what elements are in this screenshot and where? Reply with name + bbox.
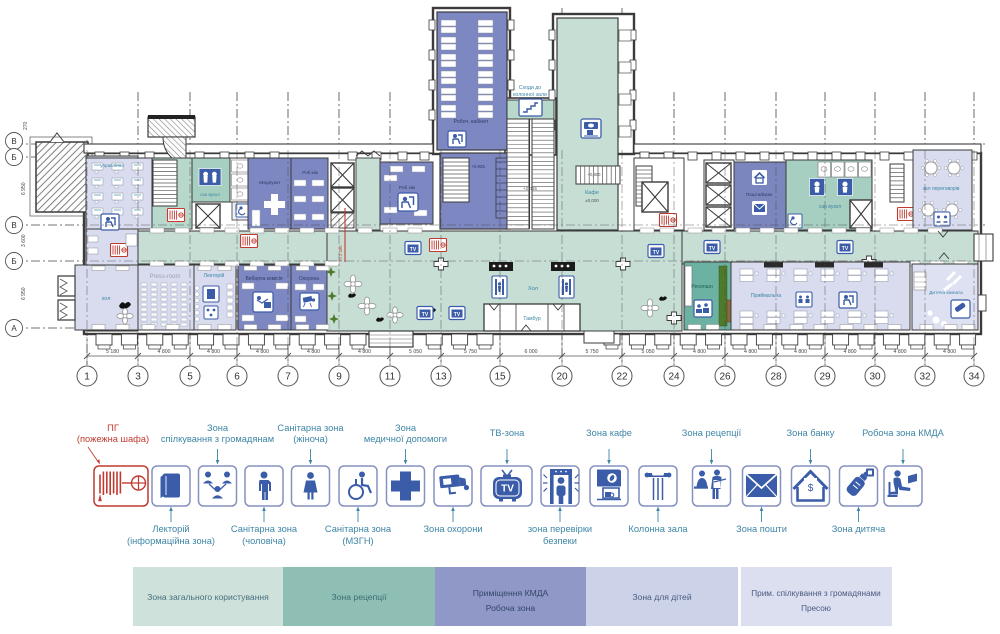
svg-text:3 600: 3 600 bbox=[21, 234, 27, 247]
svg-text:Кафе: Кафе bbox=[585, 190, 599, 196]
svg-text:ПГ: ПГ bbox=[107, 423, 119, 433]
svg-text:32: 32 bbox=[919, 372, 931, 383]
svg-text:4 800: 4 800 bbox=[794, 349, 807, 355]
svg-text:Тамбур: Тамбур bbox=[523, 316, 541, 322]
svg-text:Б: Б bbox=[11, 153, 16, 162]
svg-text:5 050: 5 050 bbox=[409, 349, 422, 355]
svg-text:6 000: 6 000 bbox=[525, 349, 538, 355]
svg-text:Приміщення КМДА: Приміщення КМДА bbox=[473, 588, 549, 598]
svg-text:Робоч. кабінет: Робоч. кабінет bbox=[454, 119, 489, 125]
svg-text:9: 9 bbox=[336, 372, 342, 383]
svg-text:Пошта/Банк: Пошта/Банк bbox=[746, 192, 774, 198]
svg-text:Ресепшн: Ресепшн bbox=[691, 284, 713, 290]
svg-text:Зона пошти: Зона пошти bbox=[736, 524, 787, 534]
svg-text:зал переговорів: зал переговорів bbox=[923, 186, 960, 192]
svg-text:4 800: 4 800 bbox=[693, 349, 706, 355]
svg-text:4 800: 4 800 bbox=[744, 349, 757, 355]
svg-text:5 750: 5 750 bbox=[464, 349, 477, 355]
svg-text:3: 3 bbox=[135, 372, 141, 383]
svg-text:Прим. спілкування з громадянам: Прим. спілкування з громадянами bbox=[751, 589, 880, 598]
svg-text:6 950: 6 950 bbox=[21, 182, 27, 195]
svg-text:4 800: 4 800 bbox=[307, 349, 320, 355]
svg-text:Лекторій: Лекторій bbox=[152, 524, 189, 534]
svg-text:Робоча зона КМДА: Робоча зона КМДА bbox=[862, 428, 945, 438]
svg-text:Б: Б bbox=[11, 257, 16, 266]
svg-text:TV: TV bbox=[410, 247, 417, 253]
svg-text:1: 1 bbox=[84, 372, 90, 383]
svg-text:Санітарна зона: Санітарна зона bbox=[231, 524, 298, 534]
svg-text:Зона рецепції: Зона рецепції bbox=[682, 428, 742, 438]
svg-text:А: А bbox=[11, 324, 17, 333]
svg-text:29: 29 bbox=[819, 372, 831, 383]
svg-text:4 800: 4 800 bbox=[894, 349, 907, 355]
svg-text:4 800: 4 800 bbox=[358, 349, 371, 355]
svg-text:(жіноча): (жіноча) bbox=[293, 434, 328, 444]
svg-text:4 800: 4 800 bbox=[943, 349, 956, 355]
svg-text:5 180: 5 180 bbox=[106, 349, 119, 355]
svg-text:11: 11 bbox=[385, 372, 396, 383]
svg-text:34: 34 bbox=[968, 372, 980, 383]
svg-text:4 800: 4 800 bbox=[844, 349, 857, 355]
svg-text:15: 15 bbox=[494, 372, 506, 383]
svg-text:$: $ bbox=[808, 483, 814, 494]
svg-text:5 750: 5 750 bbox=[586, 349, 599, 355]
svg-text:В: В bbox=[11, 137, 16, 146]
svg-text:Press-room: Press-room bbox=[149, 274, 180, 280]
svg-text:Зона: Зона bbox=[395, 423, 417, 433]
svg-text:Медпункт: Медпункт bbox=[259, 180, 281, 186]
svg-text:28: 28 bbox=[770, 372, 782, 383]
svg-text:+0,800: +0,800 bbox=[588, 172, 602, 177]
svg-text:TV: TV bbox=[422, 312, 429, 318]
svg-text:Зона кафе: Зона кафе bbox=[586, 428, 632, 438]
svg-text:270: 270 bbox=[23, 121, 29, 130]
svg-text:хол: хол bbox=[102, 296, 111, 302]
svg-text:4 800: 4 800 bbox=[256, 349, 269, 355]
svg-text:безпеки: безпеки bbox=[543, 536, 577, 546]
svg-text:Зона банку: Зона банку bbox=[787, 428, 835, 438]
svg-text:Зона охорони: Зона охорони bbox=[423, 524, 482, 534]
svg-text:Роб кім: Роб кім bbox=[302, 170, 318, 175]
svg-text:TV: TV bbox=[653, 250, 660, 256]
svg-text:(МЗГН): (МЗГН) bbox=[342, 536, 373, 546]
svg-text:(чоловіча): (чоловіча) bbox=[242, 536, 286, 546]
svg-text:+0,825: +0,825 bbox=[471, 164, 485, 169]
svg-text:20: 20 bbox=[556, 372, 568, 383]
svg-text:Лекторій: Лекторій bbox=[204, 272, 225, 279]
svg-text:4 800: 4 800 bbox=[207, 349, 220, 355]
svg-text:6 950: 6 950 bbox=[21, 287, 27, 300]
svg-text:Охорона: Охорона bbox=[299, 276, 319, 282]
svg-text:Виборча комісія: Виборча комісія bbox=[245, 276, 282, 282]
svg-text:24: 24 bbox=[668, 372, 680, 383]
svg-text:Зона рецепції: Зона рецепції bbox=[332, 592, 388, 602]
svg-text:5 050: 5 050 bbox=[642, 349, 655, 355]
svg-text:+2,015: +2,015 bbox=[523, 186, 537, 191]
svg-text:Зона загального користування: Зона загального користування bbox=[147, 592, 269, 602]
svg-text:медичної допомоги: медичної допомоги bbox=[364, 434, 447, 444]
svg-text:26: 26 bbox=[719, 372, 731, 383]
svg-text:колонної зали: колонної зали bbox=[513, 92, 547, 98]
svg-text:зона перевірки: зона перевірки bbox=[528, 524, 592, 534]
svg-text:(інформаційна зона): (інформаційна зона) bbox=[127, 536, 215, 546]
svg-text:22: 22 bbox=[616, 372, 628, 383]
svg-text:Колонна зала: Колонна зала bbox=[628, 524, 688, 534]
svg-text:4 800: 4 800 bbox=[158, 349, 171, 355]
svg-text:Хол: Хол bbox=[528, 286, 538, 292]
svg-text:6: 6 bbox=[234, 372, 240, 383]
svg-text:TV: TV bbox=[501, 484, 514, 495]
svg-text:Приймальна: Приймальна bbox=[751, 292, 781, 299]
svg-text:В: В bbox=[11, 221, 16, 230]
svg-text:Сходи до: Сходи до bbox=[519, 85, 541, 91]
svg-text:TV: TV bbox=[709, 246, 716, 252]
svg-text:ТВ-зона: ТВ-зона bbox=[490, 428, 525, 438]
svg-text:спілкування з громадянам: спілкування з громадянам bbox=[161, 434, 274, 444]
svg-text:Зона дитяча: Зона дитяча bbox=[832, 524, 886, 534]
svg-text:Санітарна зона: Санітарна зона bbox=[325, 524, 392, 534]
svg-text:±0,000: ±0,000 bbox=[585, 198, 599, 203]
svg-text:Роб кім: Роб кім bbox=[399, 185, 415, 191]
svg-text:TV: TV bbox=[842, 246, 849, 252]
svg-text:сан вузол: сан вузол bbox=[200, 192, 220, 197]
svg-text:Пресою: Пресою bbox=[801, 604, 831, 613]
svg-text:Робоча зона: Робоча зона bbox=[486, 603, 536, 613]
svg-text:Санітарна зона: Санітарна зона bbox=[277, 423, 344, 433]
svg-text:управління: управління bbox=[100, 163, 124, 168]
svg-text:(пожежна шафа): (пожежна шафа) bbox=[77, 434, 149, 444]
svg-text:13: 13 bbox=[435, 372, 447, 383]
svg-text:Зона для дітей: Зона для дітей bbox=[632, 592, 691, 602]
svg-text:сан вузол: сан вузол bbox=[819, 204, 841, 210]
svg-text:5: 5 bbox=[187, 372, 193, 383]
svg-text:TV: TV bbox=[454, 312, 461, 318]
svg-text:7: 7 bbox=[285, 372, 291, 383]
svg-text:Зона: Зона bbox=[207, 423, 229, 433]
svg-text:Дитяча кімната: Дитяча кімната bbox=[929, 290, 963, 296]
svg-text:30: 30 bbox=[869, 372, 881, 383]
